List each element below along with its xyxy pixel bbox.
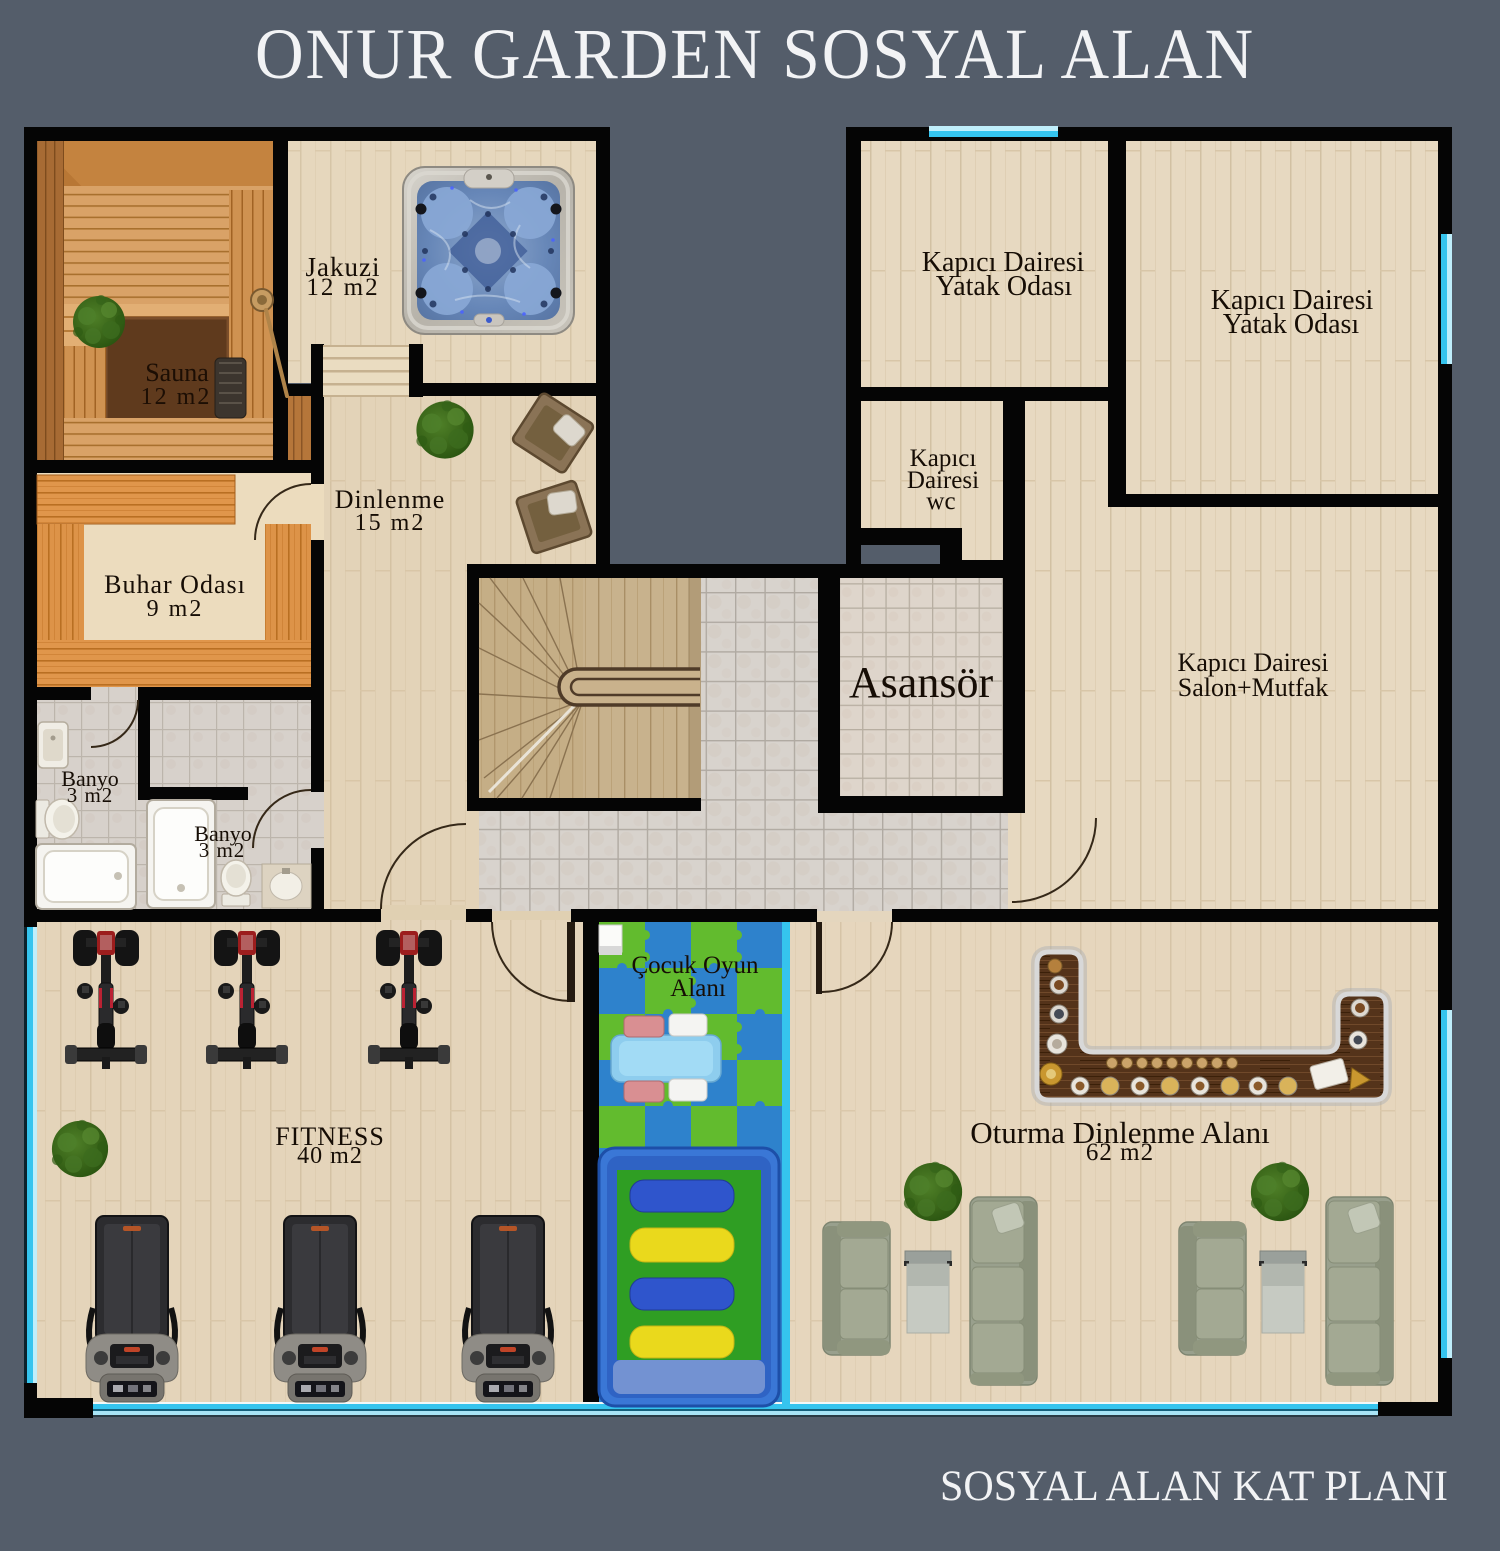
svg-text:Yatak Odası: Yatak Odası xyxy=(1223,309,1360,340)
svg-text:15 m2: 15 m2 xyxy=(355,510,426,536)
svg-text:Asansör: Asansör xyxy=(849,658,994,707)
svg-text:12 m2: 12 m2 xyxy=(141,384,212,410)
svg-text:Alanı: Alanı xyxy=(670,975,726,1002)
svg-text:Yatak Odası: Yatak Odası xyxy=(936,271,1073,302)
svg-text:12 m2: 12 m2 xyxy=(306,274,379,301)
svg-text:40 m2: 40 m2 xyxy=(297,1143,363,1169)
svg-text:Sauna: Sauna xyxy=(145,358,209,387)
svg-text:SOSYAL ALAN KAT PLANI: SOSYAL ALAN KAT PLANI xyxy=(940,1463,1448,1510)
svg-text:ONUR GARDEN SOSYAL ALAN: ONUR GARDEN SOSYAL ALAN xyxy=(255,14,1255,94)
svg-text:Salon+Mutfak: Salon+Mutfak xyxy=(1178,673,1328,702)
svg-text:9 m2: 9 m2 xyxy=(147,596,204,622)
svg-text:Buhar Odası: Buhar Odası xyxy=(104,570,246,599)
svg-text:wc: wc xyxy=(926,488,955,515)
svg-text:3 m2: 3 m2 xyxy=(67,783,114,807)
svg-text:62 m2: 62 m2 xyxy=(1086,1139,1154,1166)
svg-text:3 m2: 3 m2 xyxy=(199,838,246,862)
